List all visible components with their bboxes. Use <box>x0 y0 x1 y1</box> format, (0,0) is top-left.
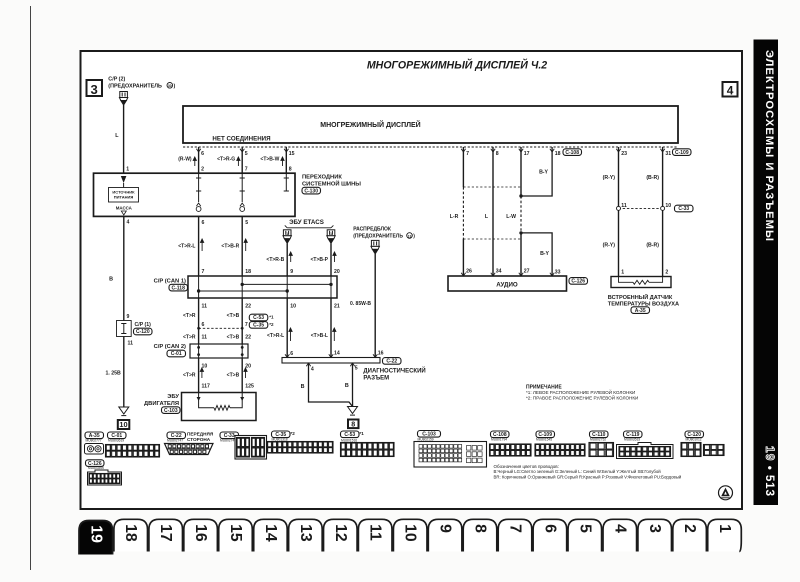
svg-text:10: 10 <box>402 524 419 542</box>
svg-text:27: 27 <box>524 269 530 275</box>
svg-text:ДВИГАТЕЛЯ: ДВИГАТЕЛЯ <box>144 401 179 407</box>
svg-text:1: 1 <box>126 167 129 173</box>
svg-text:30: 30 <box>168 84 172 88</box>
svg-text:ЭБУ ETACS: ЭБУ ETACS <box>289 219 324 226</box>
svg-text:B: B <box>301 384 305 390</box>
svg-text:C-53: C-53 <box>253 315 264 321</box>
svg-text:MU802752: MU802752 <box>590 438 606 442</box>
svg-text:РАСПРЕДБЛОК: РАСПРЕДБЛОК <box>353 227 392 233</box>
svg-text:6: 6 <box>541 524 558 533</box>
svg-text:L-R: L-R <box>450 214 459 220</box>
svg-text:7: 7 <box>507 524 524 533</box>
svg-text:C-109: C-109 <box>675 150 689 156</box>
svg-text:(R-Y): (R-Y) <box>603 243 616 249</box>
svg-text:MU803590: MU803590 <box>88 466 104 470</box>
svg-text:ПЕРЕДНЯЯ: ПЕРЕДНЯЯ <box>187 431 214 436</box>
svg-text:C-53: C-53 <box>344 432 355 438</box>
svg-text:4: 4 <box>127 220 130 226</box>
svg-text:C-120: C-120 <box>136 329 150 335</box>
svg-text:): ) <box>174 83 176 89</box>
svg-text:10: 10 <box>665 203 671 209</box>
svg-text:2: 2 <box>201 167 204 173</box>
svg-text:MU802777: MU802777 <box>86 439 102 443</box>
svg-text:B-Y: B-Y <box>539 170 548 176</box>
svg-text:22: 22 <box>245 304 251 310</box>
svg-text:MU801545: MU801545 <box>536 438 552 442</box>
svg-text:9: 9 <box>437 524 454 533</box>
svg-text:11: 11 <box>621 203 627 209</box>
svg-text:<T>R: <T>R <box>183 335 196 341</box>
svg-text:<T>B: <T>B <box>227 373 240 379</box>
svg-text:СТОРОНА: СТОРОНА <box>187 437 211 442</box>
svg-text:<T>B: <T>B <box>227 313 240 319</box>
svg-text:18: 18 <box>555 151 561 157</box>
svg-text:(B-R): (B-R) <box>646 175 659 181</box>
svg-text:(R-Y): (R-Y) <box>603 175 616 181</box>
svg-text:125: 125 <box>245 384 254 390</box>
svg-text:(ПРЕДОХРАНИТЕЛЬ: (ПРЕДОХРАНИТЕЛЬ <box>353 233 403 239</box>
svg-text:18: 18 <box>245 269 251 275</box>
svg-text:14: 14 <box>262 524 279 542</box>
svg-text:1: 1 <box>621 270 624 276</box>
svg-text:8: 8 <box>351 420 355 428</box>
svg-text:2: 2 <box>681 524 698 533</box>
svg-text:9: 9 <box>127 314 130 320</box>
svg-text:*2: *2 <box>291 431 296 436</box>
svg-text:МАССА: МАССА <box>116 206 133 211</box>
svg-text:<T>B-R: <T>B-R <box>221 244 239 250</box>
svg-text:6: 6 <box>290 351 293 357</box>
svg-text:6: 6 <box>202 322 205 328</box>
svg-text:<T>B: <T>B <box>227 335 240 341</box>
svg-text:*2: *2 <box>269 322 274 327</box>
svg-text:C-01: C-01 <box>171 351 182 357</box>
svg-text:6: 6 <box>201 151 204 157</box>
svg-text:4: 4 <box>727 84 734 98</box>
svg-text:ЭЛЕКТРОСХЕМЫ И РАЗЪЕМЫ: ЭЛЕКТРОСХЕМЫ И РАЗЪЕМЫ <box>763 50 775 242</box>
svg-text:НЕТ СОЕДИНЕНИЯ: НЕТ СОЕДИНЕНИЯ <box>212 136 271 143</box>
svg-text:1: 1 <box>716 524 733 533</box>
svg-text:1. 25B: 1. 25B <box>106 371 122 377</box>
svg-text:АУДИО: АУДИО <box>496 282 518 289</box>
svg-text:C-103: C-103 <box>164 408 178 414</box>
svg-text:31: 31 <box>665 151 671 157</box>
svg-text:*2: ПРАВОЕ РАСПОЛОЖЕНИЕ РУЛЕВО: *2: ПРАВОЕ РАСПОЛОЖЕНИЕ РУЛЕВОЙ КОЛОНКИ <box>526 393 638 400</box>
svg-text:15: 15 <box>289 151 295 157</box>
svg-text:L-W: L-W <box>506 214 516 220</box>
svg-text:7: 7 <box>202 269 205 275</box>
svg-text:МНОГОРЕЖИМНЫЙ ДИСПЛЕЙ Ч.2: МНОГОРЕЖИМНЫЙ ДИСПЛЕЙ Ч.2 <box>367 59 547 72</box>
svg-text:16: 16 <box>192 524 209 542</box>
svg-text:18: 18 <box>122 524 139 542</box>
svg-text:Обозначения цветов проводов:: Обозначения цветов проводов: <box>494 464 559 469</box>
svg-text:13: 13 <box>297 524 314 542</box>
svg-text:C-108: C-108 <box>565 150 579 156</box>
svg-text:<T>R-L: <T>R-L <box>267 333 284 339</box>
svg-text:ПЕРЕХОДНИК: ПЕРЕХОДНИК <box>302 175 342 181</box>
svg-text:22: 22 <box>245 335 251 341</box>
svg-text:*1: ЛЕВОЕ РАСПОЛОЖЕНИЕ РУЛЕВОЙ: *1: ЛЕВОЕ РАСПОЛОЖЕНИЕ РУЛЕВОЙ КОЛОНКИ <box>526 388 635 395</box>
svg-text:19 • 513: 19 • 513 <box>763 446 777 497</box>
svg-text:21: 21 <box>334 304 340 310</box>
svg-text:4: 4 <box>611 524 628 533</box>
svg-text:11: 11 <box>128 341 134 347</box>
svg-text:(R-W): (R-W) <box>178 157 192 163</box>
svg-text:MU803619: MU803619 <box>108 439 124 443</box>
svg-text:11: 11 <box>202 335 208 341</box>
svg-text:C-33: C-33 <box>678 206 689 212</box>
svg-text:12: 12 <box>332 524 349 542</box>
svg-text:17: 17 <box>157 524 174 542</box>
svg-text:8: 8 <box>289 167 292 173</box>
svg-text:2: 2 <box>665 270 668 276</box>
svg-text:6: 6 <box>202 220 205 226</box>
svg-text:<T>R-G: <T>R-G <box>217 157 235 163</box>
svg-text:1: 1 <box>330 232 332 236</box>
svg-text:17: 17 <box>524 151 530 157</box>
svg-text:8: 8 <box>496 151 499 157</box>
svg-text:MU801012: MU801012 <box>686 438 702 442</box>
svg-text:C-118: C-118 <box>172 285 186 291</box>
svg-text:1: 1 <box>286 232 288 236</box>
svg-text:ДИАГНОСТИЧЕСКИЙ: ДИАГНОСТИЧЕСКИЙ <box>363 367 425 375</box>
svg-text:26: 26 <box>466 269 472 275</box>
svg-text:<T>B-W: <T>B-W <box>260 157 279 163</box>
svg-text:<T>R-L: <T>R-L <box>178 244 195 250</box>
svg-text:7: 7 <box>245 167 248 173</box>
svg-text:C/P (CAN 1): C/P (CAN 1) <box>154 279 186 285</box>
svg-text:11: 11 <box>202 304 208 310</box>
svg-text:C-126: C-126 <box>571 279 585 285</box>
svg-text:РАЗЪЕМ: РАЗЪЕМ <box>363 376 389 382</box>
svg-text:7: 7 <box>466 151 469 157</box>
svg-text:<T>R: <T>R <box>183 313 196 319</box>
svg-text:C-103: C-103 <box>422 432 436 438</box>
svg-text:19: 19 <box>87 525 104 543</box>
svg-text:16: 16 <box>378 351 384 357</box>
svg-text:C/P (CAN 2): C/P (CAN 2) <box>154 344 186 350</box>
svg-text:10: 10 <box>290 304 296 310</box>
svg-text:C-35: C-35 <box>253 323 264 329</box>
svg-text:33: 33 <box>555 270 561 276</box>
svg-text:(B-R): (B-R) <box>646 243 659 249</box>
svg-text:MU802749: MU802749 <box>220 439 236 443</box>
svg-text:11: 11 <box>367 524 384 541</box>
svg-text:8: 8 <box>472 524 489 533</box>
svg-text:<T>R-B: <T>R-B <box>266 257 284 263</box>
svg-text:34: 34 <box>496 269 502 275</box>
svg-text:C-22: C-22 <box>386 359 397 365</box>
svg-text:10: 10 <box>119 420 127 429</box>
svg-text:5: 5 <box>245 220 248 226</box>
svg-text:ВСТРОЕННЫЙ ДАТЧИК: ВСТРОЕННЫЙ ДАТЧИК <box>608 293 673 301</box>
svg-text:*1: *1 <box>269 315 274 320</box>
svg-text:9: 9 <box>290 269 293 275</box>
svg-text:A-35: A-35 <box>635 308 646 314</box>
svg-text:4: 4 <box>311 367 314 373</box>
svg-text:ЭБУ: ЭБУ <box>167 394 179 400</box>
svg-text:МНОГРЕЖИМНЫЙ ДИСПЛЕЙ: МНОГРЕЖИМНЫЙ ДИСПЛЕЙ <box>320 120 420 129</box>
svg-text:14: 14 <box>334 351 340 357</box>
svg-text:C/P (2): C/P (2) <box>108 77 125 83</box>
svg-text:23: 23 <box>621 151 627 157</box>
svg-text:7: 7 <box>245 322 248 328</box>
svg-text:B: B <box>109 277 113 283</box>
svg-text:3: 3 <box>91 82 98 97</box>
svg-text:СИСТЕМНОЙ ШИНЫ: СИСТЕМНОЙ ШИНЫ <box>302 180 361 188</box>
svg-text:ПИТАНИЯ: ПИТАНИЯ <box>114 195 134 200</box>
svg-text:MU802747: MU802747 <box>167 439 183 443</box>
svg-text:B: B <box>345 383 349 389</box>
svg-text:5: 5 <box>576 524 593 533</box>
svg-text:MU801794: MU801794 <box>491 438 507 442</box>
svg-text:*1: *1 <box>360 431 365 436</box>
svg-text:0. 85W-B: 0. 85W-B <box>350 301 371 307</box>
svg-text:MU803533: MU803533 <box>624 438 640 442</box>
svg-text:13: 13 <box>408 234 412 238</box>
svg-text:<T>B-P: <T>B-P <box>310 257 328 263</box>
svg-text:<T>R: <T>R <box>183 373 196 379</box>
svg-text:5: 5 <box>245 151 248 157</box>
svg-text:15: 15 <box>227 524 244 542</box>
svg-text:117: 117 <box>202 384 210 390</box>
svg-text:3: 3 <box>646 524 663 533</box>
svg-text:20: 20 <box>334 269 340 275</box>
svg-text:BR: Коричневый O:Оранжевый GR:: BR: Коричневый O:Оранжевый GR:Серый R:Кр… <box>494 474 682 479</box>
svg-text:C-130: C-130 <box>304 188 318 194</box>
svg-text:B-Y: B-Y <box>540 251 549 257</box>
svg-text:<T>B-L: <T>B-L <box>311 333 328 339</box>
svg-text:(ПРЕДОХРАНИТЕЛЬ: (ПРЕДОХРАНИТЕЛЬ <box>108 83 162 89</box>
svg-text:5: 5 <box>355 366 358 372</box>
svg-text:C/P (1): C/P (1) <box>135 322 152 328</box>
